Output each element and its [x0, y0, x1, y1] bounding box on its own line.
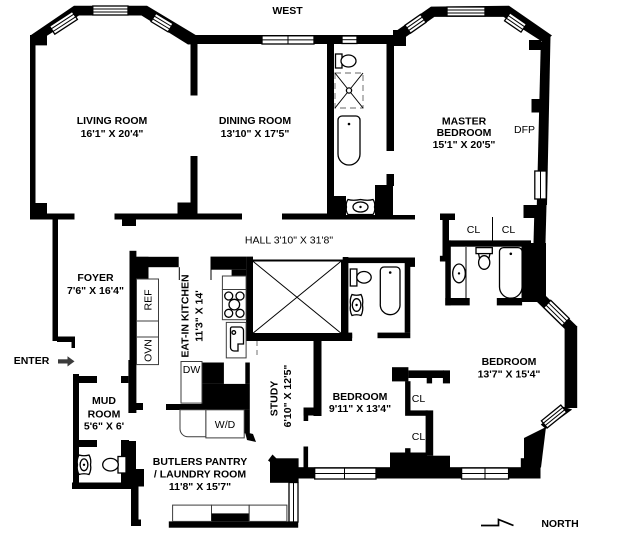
svg-text:MASTER: MASTER	[442, 115, 487, 127]
svg-text:16'1" X 20'4": 16'1" X 20'4"	[81, 128, 144, 140]
svg-text:DFP: DFP	[514, 124, 535, 136]
svg-text:HALL 3'10" X 31'8": HALL 3'10" X 31'8"	[245, 234, 333, 246]
svg-text:13'10" X 17'5": 13'10" X 17'5"	[221, 128, 290, 140]
svg-text:CL: CL	[412, 393, 426, 405]
svg-text:11'8" X 15'7": 11'8" X 15'7"	[169, 481, 231, 493]
svg-text:5'6" X 6': 5'6" X 6'	[84, 421, 124, 433]
svg-text:ROOM: ROOM	[88, 409, 121, 421]
svg-text:WEST: WEST	[272, 5, 303, 17]
svg-text:CL: CL	[467, 224, 481, 236]
svg-text:11'3" X 14': 11'3" X 14'	[193, 290, 205, 341]
svg-text:EAT-IN KITCHEN: EAT-IN KITCHEN	[179, 274, 191, 357]
svg-text:W/D: W/D	[215, 419, 236, 431]
svg-text:MUD: MUD	[92, 395, 116, 407]
svg-text:7'6" X 16'4": 7'6" X 16'4"	[67, 285, 124, 297]
svg-text:BEDROOM: BEDROOM	[333, 391, 388, 403]
svg-text:LIVING ROOM: LIVING ROOM	[77, 115, 148, 127]
svg-text:NORTH: NORTH	[541, 518, 578, 530]
svg-text:ENTER: ENTER	[14, 355, 50, 367]
svg-text:BEDROOM: BEDROOM	[437, 127, 492, 139]
svg-text:/ LAUNDRY ROOM: / LAUNDRY ROOM	[154, 469, 246, 481]
svg-text:BUTLERS PANTRY: BUTLERS PANTRY	[153, 456, 248, 468]
svg-text:STUDY: STUDY	[269, 381, 281, 417]
svg-text:OVN: OVN	[142, 339, 154, 362]
svg-text:BEDROOM: BEDROOM	[482, 356, 537, 368]
svg-text:9'11" X 13'4": 9'11" X 13'4"	[329, 403, 391, 415]
svg-text:REF: REF	[142, 290, 154, 311]
svg-text:DINING ROOM: DINING ROOM	[219, 115, 292, 127]
svg-text:FOYER: FOYER	[77, 272, 114, 284]
svg-text:13'7" X 15'4": 13'7" X 15'4"	[478, 369, 541, 381]
svg-text:DW: DW	[183, 364, 201, 376]
svg-text:6'10" X 12'5": 6'10" X 12'5"	[282, 365, 294, 428]
svg-text:CL: CL	[502, 224, 516, 236]
svg-text:CL: CL	[412, 431, 426, 443]
svg-text:15'1" X 20'5": 15'1" X 20'5"	[433, 139, 496, 151]
